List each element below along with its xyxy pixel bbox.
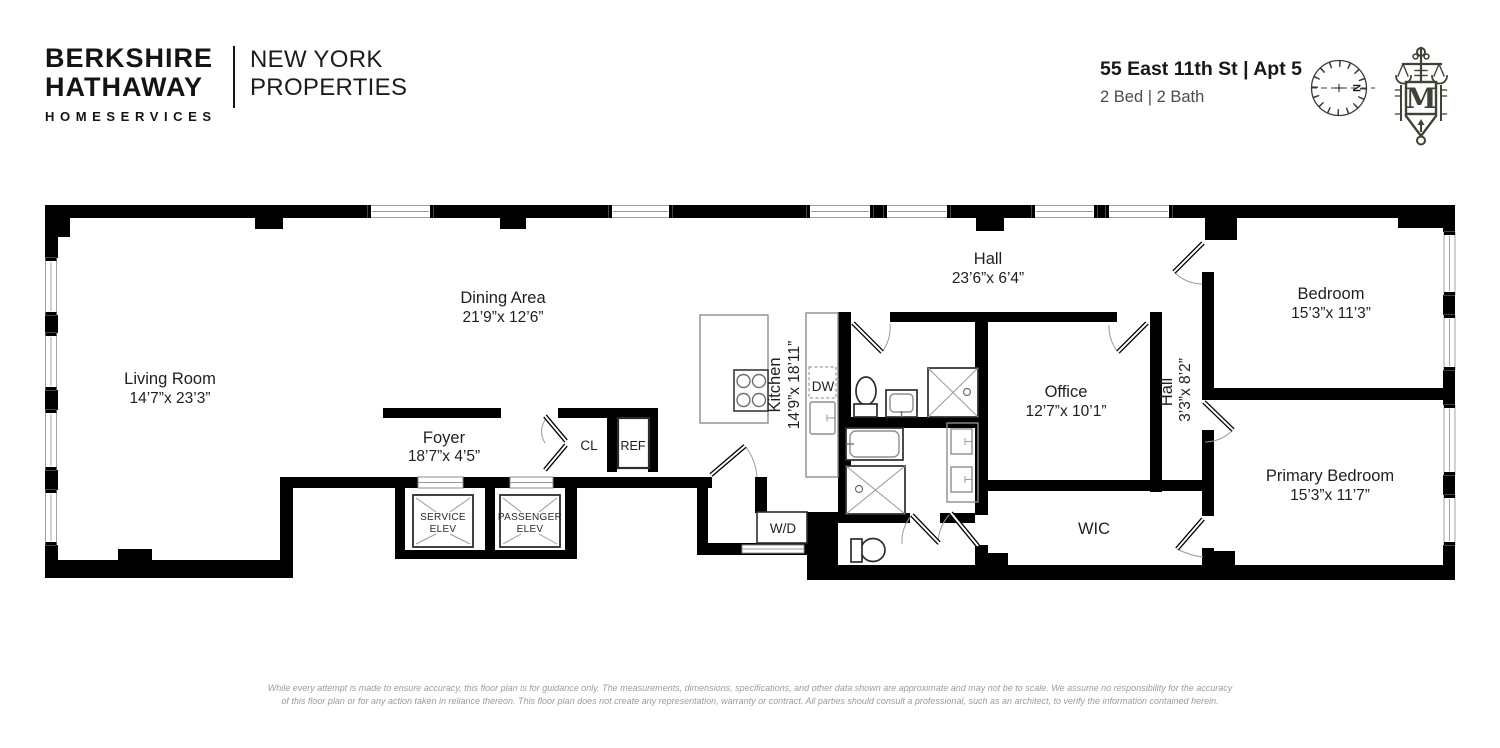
dishwasher-label: DW (812, 379, 835, 394)
shower-icon (846, 466, 905, 514)
hall-side-name: Hall (1158, 378, 1176, 406)
compass-north-label: N (1350, 84, 1362, 92)
foyer-name: Foyer (423, 429, 466, 447)
room-office: Office 12’7”x 10’1” (1026, 383, 1107, 420)
kitchen-name: Kitchen (766, 357, 784, 412)
hall-top-dims: 23’6”x 6’4” (952, 270, 1024, 287)
wic-right-door (1177, 519, 1203, 557)
bathroom-1-door (853, 323, 890, 352)
disclaimer-line-1: While every attempt is made to ensure ac… (0, 682, 1500, 695)
toilet-icon (851, 539, 885, 563)
dining-area-name: Dining Area (460, 289, 546, 307)
elevator-door (418, 477, 463, 488)
service-elev-label-1: SERVICE (420, 512, 466, 523)
closet-bifold-door (542, 416, 567, 470)
sink-icon (886, 390, 917, 417)
office-door (1109, 323, 1147, 352)
bathroom-2-fixtures (846, 423, 978, 562)
bedroom-dims: 15’3”x 11’3” (1291, 305, 1371, 322)
room-foyer: Foyer 18’7”x 4’5” (408, 429, 480, 465)
dining-area-dims: 21’9”x 12’6” (463, 309, 544, 326)
disclaimer: While every attempt is made to ensure ac… (0, 682, 1500, 707)
room-hall-side: Hall 3’3”x 8’2” (1158, 358, 1194, 422)
primary-bedroom-name: Primary Bedroom (1266, 467, 1394, 485)
refrigerator: REF (618, 418, 649, 468)
toilet-icon (854, 377, 877, 417)
passenger-elev-label-1: PASSENGER (498, 512, 562, 523)
washer-dryer-closet: W/D (742, 512, 807, 553)
room-living-room: Living Room 14’7”x 23’3” (124, 370, 216, 407)
bathtub-icon (846, 428, 903, 460)
living-room-dims: 14’7”x 23’3” (130, 390, 211, 407)
dishwasher: DW (809, 367, 836, 398)
kitchen-sink-icon (810, 402, 835, 434)
service-elev-label-2: ELEV (430, 524, 457, 535)
office-dims: 12’7”x 10’1” (1026, 403, 1107, 420)
bedroom-name: Bedroom (1298, 285, 1365, 303)
room-bedroom: Bedroom 15’3”x 11’3” (1291, 285, 1371, 322)
refrigerator-label: REF (621, 439, 646, 453)
service-elevator: SERVICE ELEV (413, 495, 473, 547)
washer-dryer-label: W/D (770, 521, 796, 536)
compass-icon: N (1311, 61, 1375, 116)
m-crest-letter: M (1406, 82, 1437, 115)
living-room-name: Living Room (124, 370, 216, 388)
entry-door (711, 446, 757, 477)
primary-bedroom-dims: 15’3”x 11’7” (1290, 487, 1370, 504)
room-hall-top: Hall 23’6”x 6’4” (952, 250, 1024, 287)
double-vanity-icon (947, 423, 978, 502)
floor-plan: N M (0, 0, 1500, 748)
office-name: Office (1045, 383, 1088, 401)
passenger-elevator: PASSENGER ELEV (498, 495, 562, 547)
shower-icon (928, 368, 978, 417)
hall-top-name: Hall (974, 250, 1002, 268)
elevator-door (510, 477, 553, 488)
kitchen-dims: 14’9”x 18’11” (786, 341, 803, 429)
disclaimer-line-2: of this floor plan or for any action tak… (0, 695, 1500, 708)
room-kitchen: Kitchen 14’9”x 18’11” (766, 341, 803, 429)
bedroom-door (1174, 243, 1203, 284)
stove-icon (734, 370, 768, 411)
closet-label: CL (580, 438, 598, 453)
hall-side-dims: 3’3”x 8’2” (1177, 358, 1194, 422)
room-dining-area: Dining Area 21’9”x 12’6” (460, 289, 546, 326)
room-primary-bedroom: Primary Bedroom 15’3”x 11’7” (1266, 467, 1394, 504)
foyer-dims: 18’7”x 4’5” (408, 448, 480, 465)
m-crest-icon: M (1396, 48, 1448, 145)
bathroom-1-fixtures (854, 368, 978, 417)
wic-label: WIC (1078, 520, 1110, 538)
passenger-elev-label-2: ELEV (517, 524, 544, 535)
